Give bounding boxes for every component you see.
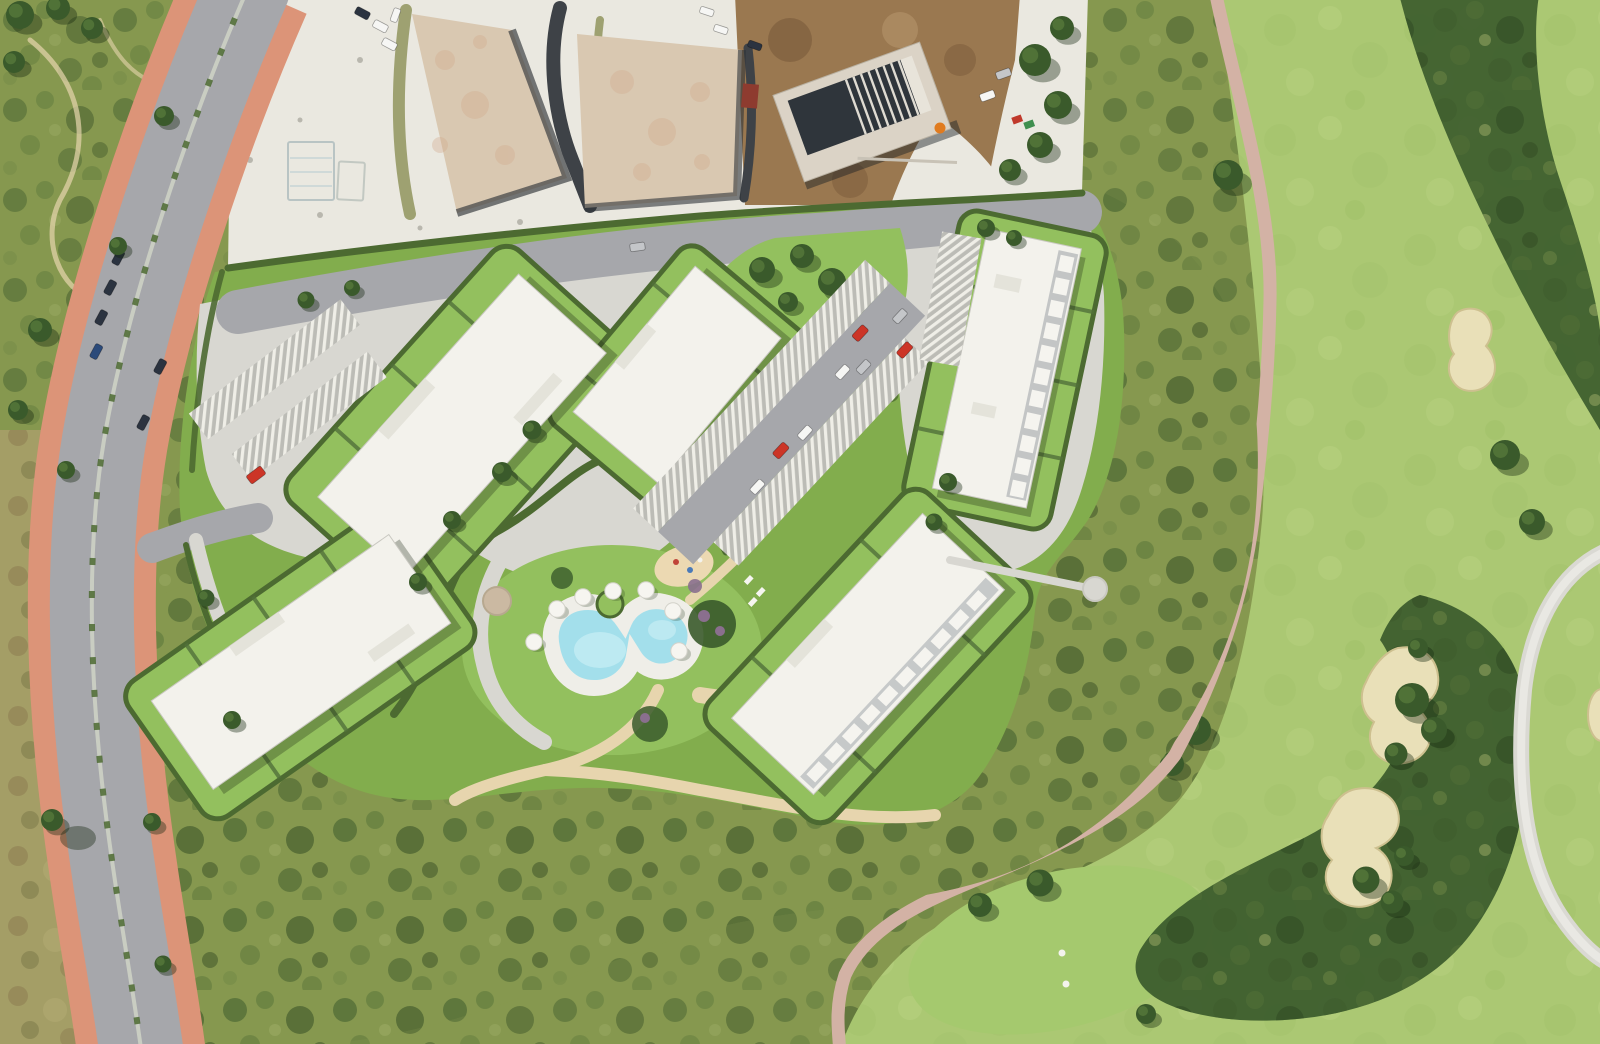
pool-shallow	[574, 632, 626, 668]
tee-marker	[1059, 950, 1066, 957]
tee-marker	[1063, 981, 1070, 988]
concrete-slab-2	[577, 34, 742, 208]
round-plaza	[1083, 577, 1107, 601]
car-internal-road	[630, 242, 646, 252]
aerial-photo	[0, 0, 1600, 1044]
development-plot	[118, 190, 1124, 831]
dirt-patch	[768, 18, 812, 62]
round-pavilion	[483, 587, 511, 615]
excavator	[935, 123, 946, 134]
dirt-patch-light	[882, 12, 918, 48]
bunker-top	[1449, 309, 1495, 391]
pool-shallow	[648, 620, 676, 640]
aerial-scene	[0, 0, 1600, 1044]
dirt-patch	[944, 44, 976, 76]
site-container	[741, 83, 759, 108]
